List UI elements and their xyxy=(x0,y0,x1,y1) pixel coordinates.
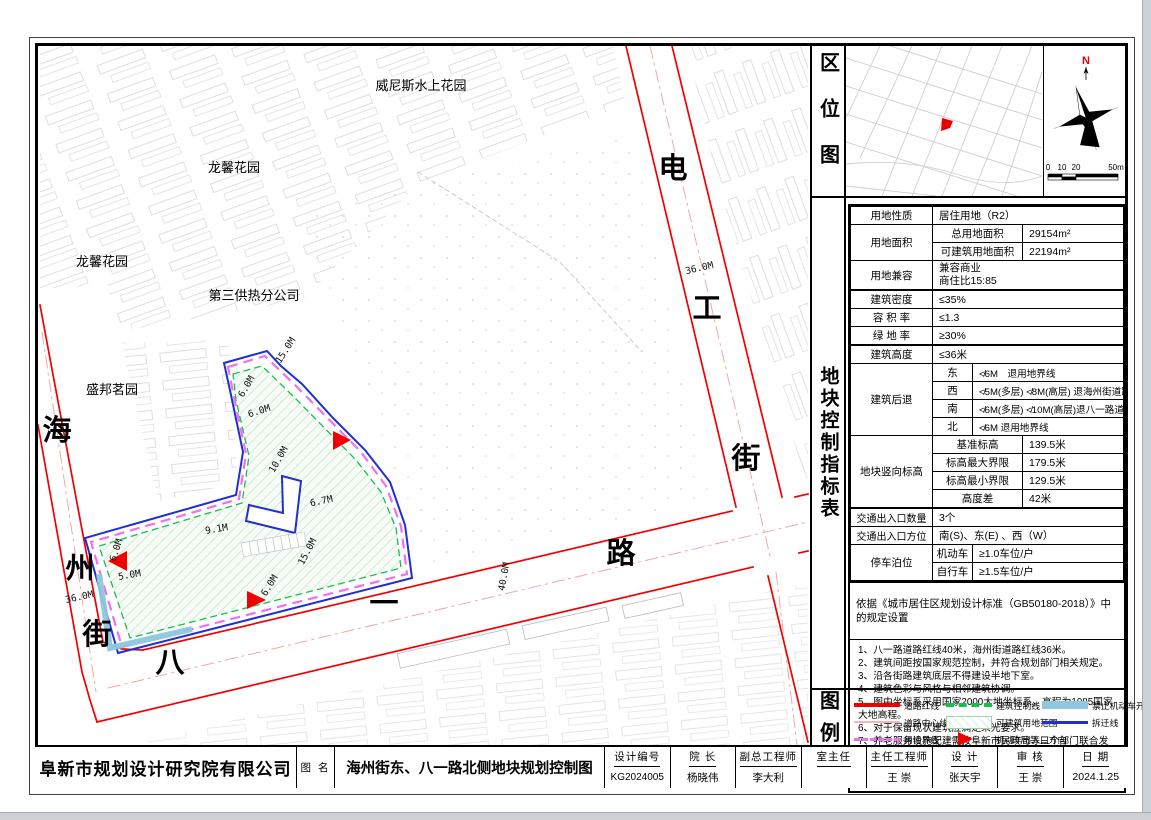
field-president: 院 长 杨晓伟 xyxy=(671,747,737,788)
company-name: 阜新市规划设计研究院有限公司 xyxy=(35,747,297,788)
site-location-marker xyxy=(941,118,953,131)
street-diangong-2: 工 xyxy=(692,293,721,325)
control-line-swatch xyxy=(946,698,992,712)
area-longxin-garden-2: 龙馨花园 xyxy=(76,254,128,269)
area-venice-garden: 威尼斯水上花园 xyxy=(375,78,466,93)
density-label: 建筑密度 xyxy=(851,290,933,309)
far-value: ≤1.3 xyxy=(933,309,1124,327)
indicators-section: 地块控制指标表 用地性质 居住用地（R2） 用地面积 总用地面积 29154m²… xyxy=(812,198,1128,690)
svg-text:10: 10 xyxy=(1058,163,1067,172)
entrance-arrow-swatch xyxy=(946,732,992,746)
dim-top: 15.0M xyxy=(273,335,298,365)
buildable-area-label: 可建筑用地面积 xyxy=(933,243,1023,261)
entrance-dir-label: 交通出入口方位 xyxy=(851,527,933,545)
buildable-area-value: 22194m² xyxy=(1023,243,1124,261)
land-use-value: 居住用地（R2） xyxy=(933,207,1124,225)
street-haizhou-2: 州 xyxy=(65,553,94,585)
parking-label: 停车泊位 xyxy=(851,545,933,581)
road-redline-swatch xyxy=(854,698,900,712)
indicators-section-title: 地块控制指标表 xyxy=(812,198,846,688)
boundary-swatch xyxy=(854,732,900,746)
north-label: N xyxy=(1082,55,1090,67)
mix-label: 用地兼容 xyxy=(851,261,933,291)
location-map-sketch xyxy=(846,46,1042,196)
buildable-swatch xyxy=(946,715,992,729)
green-value: ≥30% xyxy=(933,327,1124,346)
legend-centerline: 道路中心线 xyxy=(854,714,946,730)
field-date: 日 期 2024.1.25 xyxy=(1064,747,1129,788)
street-diangong-3: 街 xyxy=(730,441,760,475)
land-use-label: 用地性质 xyxy=(851,207,933,225)
street-bayi-1: 八 xyxy=(155,647,185,679)
street-haizhou-3: 街 xyxy=(81,617,111,651)
setback-label: 建筑后退 xyxy=(851,364,933,436)
svg-text:20: 20 xyxy=(1072,163,1081,172)
field-deputy-chief-engineer: 副总工程师 李大利 xyxy=(736,747,802,788)
centerline-swatch xyxy=(854,715,900,729)
entrance-count-value: 3个 xyxy=(933,508,1124,527)
legend-road-redline: 道路红线 xyxy=(854,697,946,713)
mix-value: 兼容商业 商住比15:85 xyxy=(933,261,1124,291)
entrance-count-label: 交通出入口数量 xyxy=(851,508,933,527)
site-plan-map: 15.0M 6.0M 6.0M 10.0M 6.7M 9.1M 15.0M 6.… xyxy=(38,46,810,745)
svg-text:50m: 50m xyxy=(1108,163,1124,172)
right-panel: 区位图 xyxy=(810,46,1128,745)
field-design-no: 设计编号 KG2024005 xyxy=(605,747,671,788)
drawing-title: 海州街东、八一路北侧地块规划控制图 xyxy=(335,747,605,788)
scale-bar: 0 10 20 50m xyxy=(1046,163,1124,180)
plan-sheet: 15.0M 6.0M 6.0M 10.0M 6.7M 9.1M 15.0M 6.… xyxy=(0,0,1151,820)
street-diangong-1: 电 xyxy=(658,152,687,185)
field-office-director: 室主任 xyxy=(802,747,868,788)
height-label: 建筑高度 xyxy=(851,345,933,364)
field-chief-engineer: 主任工程师 王 崇 xyxy=(867,747,933,788)
far-label: 容 积 率 xyxy=(851,309,933,327)
north-arrow-icon: N 0 10 20 xyxy=(1044,46,1128,196)
height-value: ≤36米 xyxy=(933,345,1124,364)
field-designer: 设 计 张天宇 xyxy=(933,747,999,788)
area-longxin-garden-1: 龙馨花园 xyxy=(208,160,260,175)
title-block: 阜新市规划设计研究院有限公司 图 名 海州街东、八一路北侧地块规划控制图 设计编… xyxy=(35,745,1128,788)
entrance-dir-value: 南(S)、东(E) 、西（W） xyxy=(933,527,1124,545)
legend-demolition: 拆迁线 xyxy=(1042,714,1146,730)
scan-edge-bottom xyxy=(0,812,1151,820)
demolition-swatch xyxy=(1042,715,1088,729)
elevation-label: 地块竖向标高 xyxy=(851,436,933,509)
drawing-name-label: 图 名 xyxy=(297,747,335,788)
total-area-value: 29154m² xyxy=(1023,225,1124,243)
legend-control-line: 建筑控制线 xyxy=(946,697,1042,713)
compass-area: N 0 10 20 xyxy=(1044,46,1128,196)
street-bayi-2: 一 xyxy=(369,588,398,620)
total-area-label: 总用地面积 xyxy=(933,225,1023,243)
standard-note: 依据《城市居住区规划设计标准（GB50180-2018）》中的规定设置 xyxy=(850,581,1124,639)
density-value: ≤35% xyxy=(933,290,1124,309)
location-section-title: 区位图 xyxy=(812,46,846,196)
svg-text:0: 0 xyxy=(1046,163,1051,172)
street-haizhou-1: 海 xyxy=(42,414,71,447)
green-label: 绿 地 率 xyxy=(851,327,933,346)
field-reviewer: 审 核 王 崇 xyxy=(998,747,1064,788)
area-shengbang-garden: 盛邦茗园 xyxy=(86,382,138,397)
area-label: 用地面积 xyxy=(851,225,933,261)
street-bayi-3: 路 xyxy=(606,537,636,570)
legend-buildable: 可建筑用地范围 xyxy=(946,714,1042,730)
no-opening-swatch xyxy=(1042,698,1088,712)
area-heating-company: 第三供热分公司 xyxy=(208,288,299,303)
scan-edge-right xyxy=(1142,0,1151,820)
location-section: 区位图 xyxy=(812,46,1128,198)
location-map xyxy=(846,46,1044,196)
legend-no-opening: 禁止机动车开口路段 xyxy=(1042,697,1146,713)
